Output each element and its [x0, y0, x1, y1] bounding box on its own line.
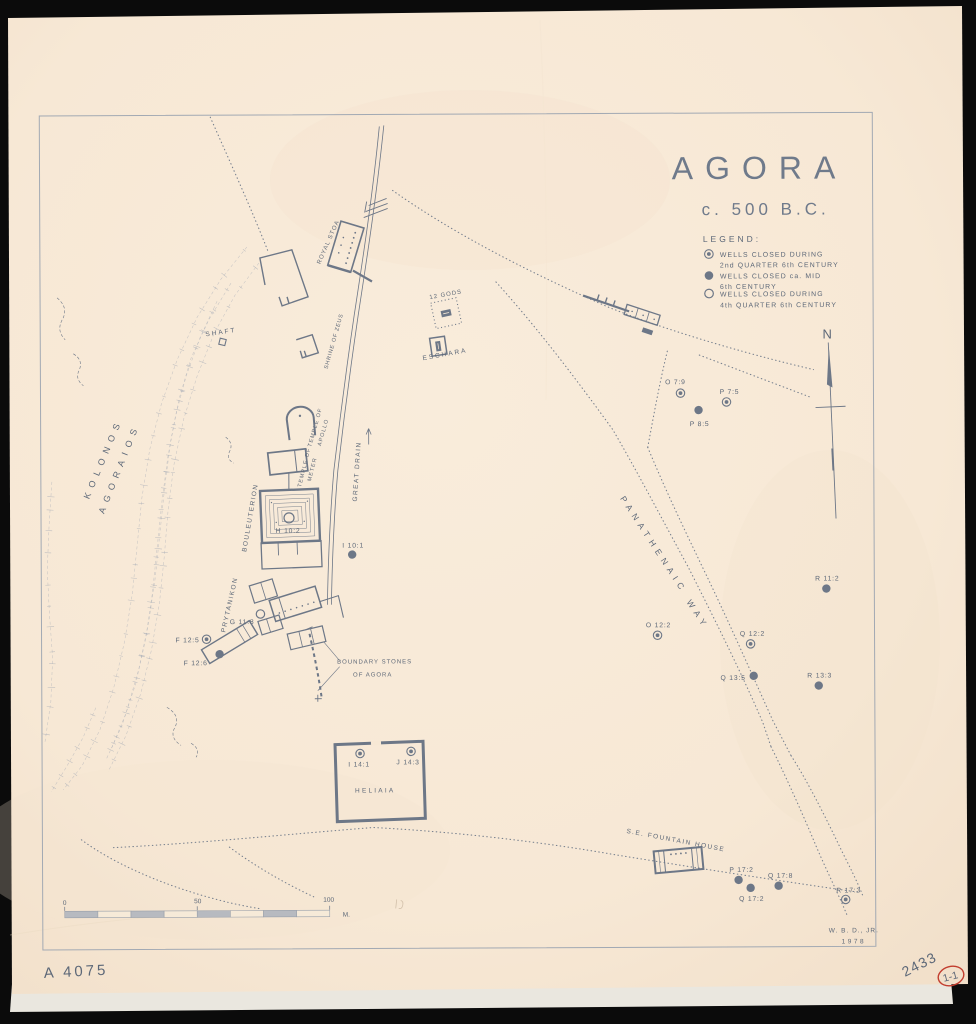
map-label-boundary-stones: BOUNDARY STONES [337, 659, 412, 665]
credit-initials: W. B. D., JR. [829, 927, 879, 934]
well-label-p-7-5: P 7:5 [720, 389, 740, 396]
well-label-i-10-1: I 10:1 [342, 543, 364, 550]
catalog-number-handwritten: A 4075 [43, 962, 109, 982]
well-label-r-11-2: R 11:2 [815, 575, 839, 582]
scale-tick-0: 0 [63, 900, 67, 907]
well-label-q-12-2: Q 12:2 [740, 631, 765, 638]
well-label-p-8-5: P 8:5 [690, 421, 710, 428]
legend-item-3-line-2: 4th QUARTER 6th CENTURY [720, 302, 837, 310]
well-label-g-11-8: G 11:8 [230, 619, 255, 626]
legend-item-1-line-1: WELLS CLOSED DURING [720, 252, 824, 259]
well-label-h-10-2: H 10:2 [276, 528, 301, 535]
well-label-i-14-1: I 14:1 [348, 762, 370, 769]
scale-unit: M. [343, 912, 350, 919]
map-label-of-agora: OF AGORA [353, 672, 392, 678]
well-label-q-17-8: Q 17:8 [768, 873, 793, 880]
well-label-f-12-6: F 12:6 [184, 660, 208, 667]
well-label-p-17-2: P 17:2 [729, 867, 753, 874]
agora-map-photograph: AGORA c. 500 B.C. LEGEND: WELLS CLOSED D… [0, 0, 976, 1024]
north-arrow-letter: N [822, 326, 831, 341]
map-subtitle: c. 500 B.C. [702, 200, 830, 220]
scale-tick-50: 50 [194, 898, 202, 905]
well-label-q-17-2: Q 17:2 [739, 896, 764, 903]
legend-heading: LEGEND: [703, 234, 761, 244]
legend-item-2-line-2: 6th CENTURY [720, 284, 777, 291]
well-closed-mid-century-icon [705, 271, 714, 280]
scale-tick-100: 100 [323, 897, 334, 904]
legend-item-3-line-1: WELLS CLOSED DURING [720, 291, 824, 298]
well-label-r-13-3: R 13:3 [807, 673, 832, 680]
well-label-r-17-3: R 17:3 [836, 887, 861, 894]
legend-item-2-line-1: WELLS CLOSED ca. MID [720, 273, 821, 280]
map-label-heliaia: HELIAIA [355, 787, 395, 794]
well-label-f-12-5: F 12:5 [175, 637, 199, 644]
legend-item-1-line-2: 2nd QUARTER 6th CENTURY [720, 262, 839, 270]
well-label-j-14-3: J 14:3 [396, 759, 419, 766]
well-label-o-7-9: O 7:9 [665, 379, 686, 386]
well-label-o-12-2: O 12:2 [646, 622, 671, 629]
credit-year: 1978 [842, 938, 866, 945]
well-label-q-13-5: Q 13:5 [720, 675, 745, 682]
map-title: AGORA [672, 149, 848, 186]
